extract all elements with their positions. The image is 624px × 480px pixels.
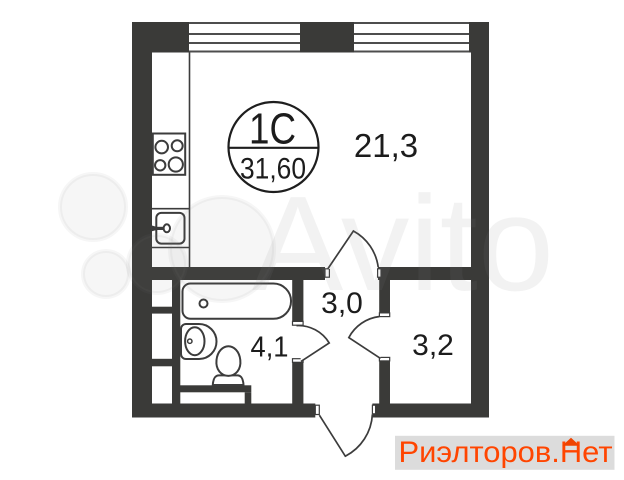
svg-text:1С: 1С: [249, 105, 296, 154]
svg-text:21,3: 21,3: [354, 127, 418, 164]
svg-text:4,1: 4,1: [251, 332, 289, 364]
svg-text:Риэлторов.Нет: Риэлторов.Нет: [399, 436, 613, 469]
svg-text:Avito: Avito: [252, 168, 554, 319]
svg-text:3,2: 3,2: [412, 329, 454, 362]
